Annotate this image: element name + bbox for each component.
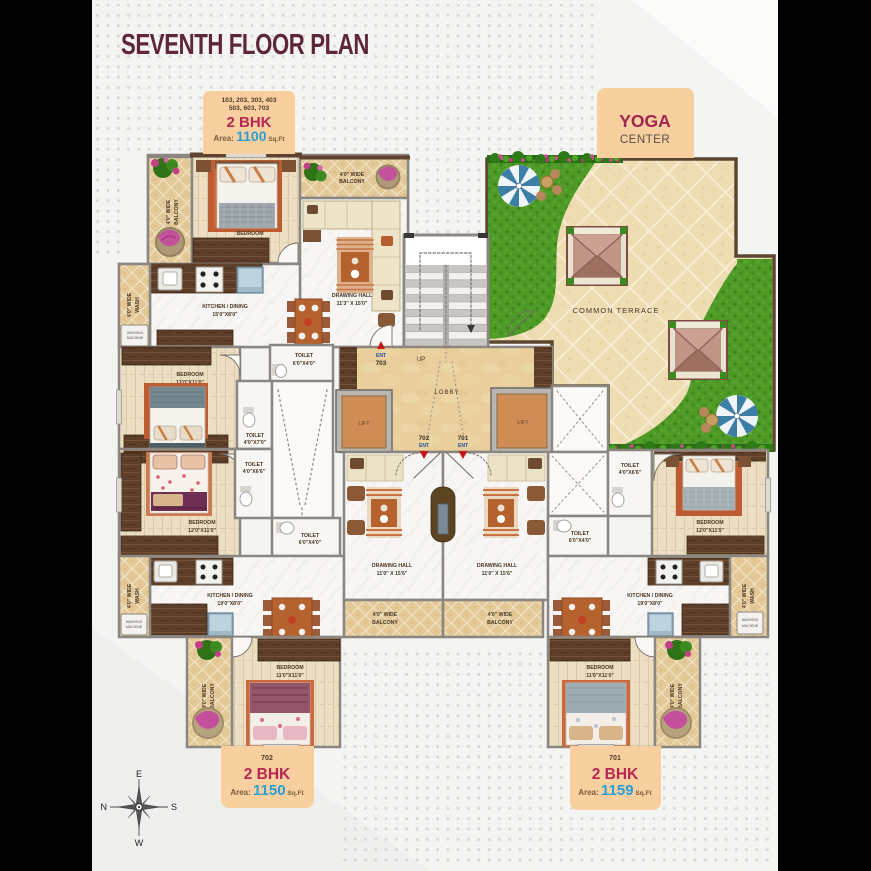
svg-text:BALCONY: BALCONY <box>210 683 216 709</box>
svg-text:SEVENTH FLOOR PLAN: SEVENTH FLOOR PLAN <box>121 29 369 61</box>
svg-text:BEDROOM: BEDROOM <box>176 372 203 378</box>
svg-text:4'0" WIDE: 4'0" WIDE <box>202 683 208 708</box>
svg-text:TOILET: TOILET <box>295 353 314 359</box>
svg-text:TOILET: TOILET <box>301 533 320 539</box>
svg-text:2 BHK: 2 BHK <box>592 766 639 783</box>
svg-text:KITCHEN / DINING: KITCHEN / DINING <box>627 593 673 599</box>
svg-text:702: 702 <box>261 755 273 762</box>
svg-text:N: N <box>101 802 108 812</box>
svg-text:503, 603, 703: 503, 603, 703 <box>229 105 270 112</box>
svg-text:WASHING: WASHING <box>742 618 759 622</box>
svg-text:COMMON TERRACE: COMMON TERRACE <box>573 306 660 315</box>
svg-text:TOILET: TOILET <box>621 463 640 469</box>
svg-text:DRAWING HALL: DRAWING HALL <box>477 563 518 569</box>
svg-text:BEDROOM: BEDROOM <box>236 231 263 237</box>
svg-text:6'0"X4'0": 6'0"X4'0" <box>293 361 316 367</box>
svg-text:19'0"X8'0": 19'0"X8'0" <box>217 601 243 607</box>
svg-text:BALCONY: BALCONY <box>372 620 398 626</box>
svg-text:ENT: ENT <box>458 443 468 449</box>
svg-text:2 BHK: 2 BHK <box>244 766 291 783</box>
svg-text:ENT: ENT <box>419 443 429 449</box>
svg-text:ENT: ENT <box>376 353 386 359</box>
svg-text:702: 702 <box>419 435 430 442</box>
svg-text:4'0"X6'6": 4'0"X6'6" <box>243 469 266 475</box>
svg-text:11'3" X 15'0": 11'3" X 15'0" <box>337 301 368 307</box>
svg-text:11'0"X11'0": 11'0"X11'0" <box>276 673 304 679</box>
svg-text:BEDROOM: BEDROOM <box>696 520 723 526</box>
svg-text:701: 701 <box>458 435 469 442</box>
svg-text:11'0" X 15'6": 11'0" X 15'6" <box>377 571 408 577</box>
svg-text:4'0" WIDE: 4'0" WIDE <box>373 612 398 618</box>
svg-text:KITCHEN / DINING: KITCHEN / DINING <box>202 304 248 310</box>
svg-text:TOILET: TOILET <box>245 462 264 468</box>
svg-text:WASH: WASH <box>750 588 756 604</box>
svg-text:WASH: WASH <box>135 297 141 313</box>
svg-text:4'0"X6'6": 4'0"X6'6" <box>619 470 642 476</box>
svg-text:KITCHEN / DINING: KITCHEN / DINING <box>207 593 253 599</box>
svg-text:11'0" X 15'6": 11'0" X 15'6" <box>482 571 513 577</box>
svg-text:4'0" WIDE: 4'0" WIDE <box>127 583 133 608</box>
svg-text:12'0"X11'0": 12'0"X11'0" <box>188 528 216 534</box>
svg-text:4'0"X7'0": 4'0"X7'0" <box>244 440 267 446</box>
svg-text:BALCONY: BALCONY <box>174 199 180 225</box>
svg-text:12'0"X11'0": 12'0"X11'0" <box>696 528 724 534</box>
svg-text:703: 703 <box>376 360 387 367</box>
svg-text:MACHINE: MACHINE <box>126 625 143 629</box>
svg-text:BALCONY: BALCONY <box>339 179 365 185</box>
svg-text:CENTER: CENTER <box>620 134 670 146</box>
svg-text:MACHINE: MACHINE <box>127 336 144 340</box>
svg-text:4'0" WIDE: 4'0" WIDE <box>166 199 172 224</box>
svg-text:WASHING: WASHING <box>126 620 143 624</box>
svg-text:BEDROOM: BEDROOM <box>586 665 613 671</box>
svg-text:6'0"X4'0": 6'0"X4'0" <box>299 540 322 546</box>
svg-text:LIFT: LIFT <box>517 420 529 426</box>
svg-text:4'0" WIDE: 4'0" WIDE <box>340 172 365 178</box>
svg-text:4'0" WIDE: 4'0" WIDE <box>742 583 748 608</box>
svg-text:W: W <box>135 838 144 848</box>
svg-text:TOILET: TOILET <box>246 433 265 439</box>
svg-text:DRAWING HALL: DRAWING HALL <box>332 293 373 299</box>
svg-text:WASH: WASH <box>135 588 141 604</box>
svg-text:4'0" WIDE: 4'0" WIDE <box>670 683 676 708</box>
svg-text:103, 203, 303, 403: 103, 203, 303, 403 <box>222 97 277 104</box>
svg-text:15'0"X8'0": 15'0"X8'0" <box>212 312 238 318</box>
svg-text:TOILET: TOILET <box>571 531 590 537</box>
svg-text:BALCONY: BALCONY <box>678 683 684 709</box>
svg-text:4'0" WIDE: 4'0" WIDE <box>488 612 513 618</box>
svg-text:LOBBY: LOBBY <box>434 390 459 396</box>
svg-text:WASHING: WASHING <box>127 331 144 335</box>
svg-text:DRAWING HALL: DRAWING HALL <box>372 563 413 569</box>
svg-text:11'0"X11'0": 11'0"X11'0" <box>586 673 614 679</box>
svg-text:6'0"X4'0": 6'0"X4'0" <box>569 538 592 544</box>
svg-text:701: 701 <box>609 755 621 762</box>
svg-text:E: E <box>136 769 142 779</box>
svg-text:MACHINE: MACHINE <box>742 624 759 628</box>
svg-text:LIFT: LIFT <box>358 421 370 427</box>
svg-text:UP: UP <box>417 357 425 363</box>
svg-text:4'0" WIDE: 4'0" WIDE <box>127 292 133 317</box>
svg-text:S: S <box>171 802 177 812</box>
svg-text:BEDROOM: BEDROOM <box>188 520 215 526</box>
svg-text:19'0"X8'0": 19'0"X8'0" <box>637 601 663 607</box>
svg-text:YOGA: YOGA <box>619 111 671 131</box>
svg-text:BALCONY: BALCONY <box>487 620 513 626</box>
svg-text:BEDROOM: BEDROOM <box>276 665 303 671</box>
